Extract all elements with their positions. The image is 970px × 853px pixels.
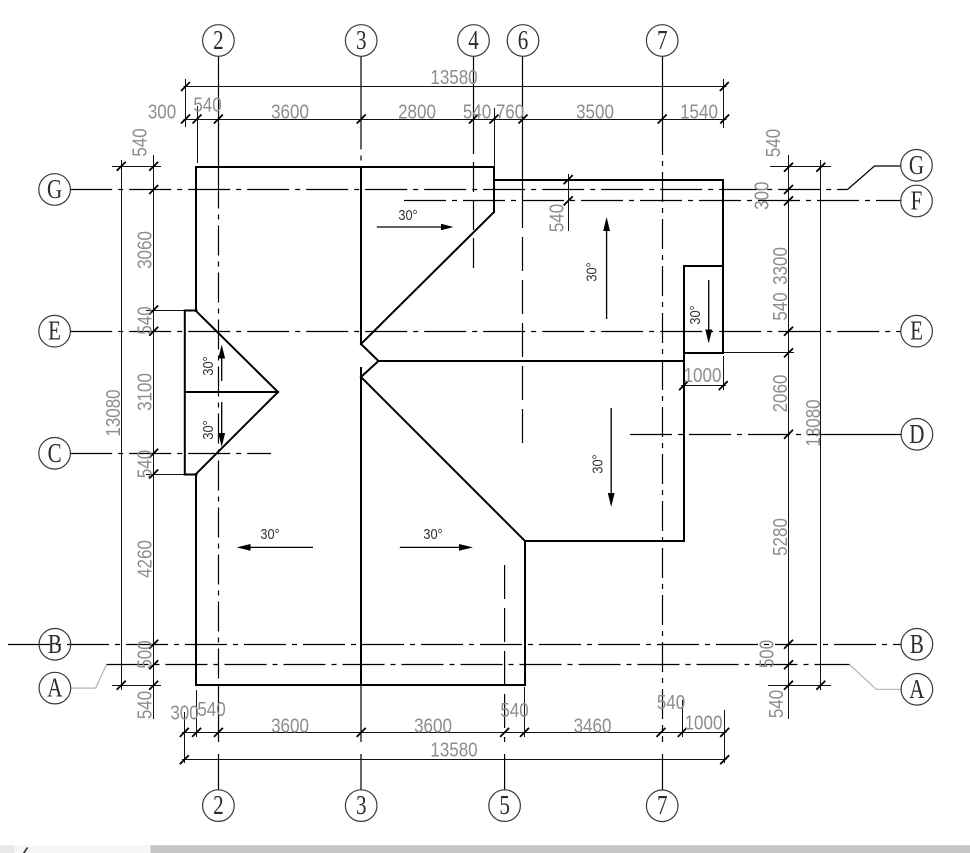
- svg-text:3: 3: [356, 26, 367, 56]
- svg-text:540: 540: [128, 128, 151, 156]
- svg-text:540: 540: [762, 129, 785, 157]
- svg-text:13580: 13580: [430, 738, 477, 761]
- svg-text:7: 7: [657, 26, 668, 56]
- svg-text:500: 500: [755, 640, 778, 668]
- svg-text:30°: 30°: [588, 454, 605, 473]
- svg-text:540: 540: [133, 306, 156, 334]
- svg-text:5280: 5280: [769, 518, 792, 556]
- svg-text:3300: 3300: [769, 247, 792, 285]
- svg-text:3100: 3100: [133, 373, 156, 411]
- svg-text:F: F: [911, 186, 923, 216]
- svg-text:300: 300: [750, 182, 773, 210]
- svg-text:500: 500: [133, 640, 156, 668]
- svg-text:5: 5: [499, 791, 510, 821]
- svg-text:540: 540: [133, 691, 156, 719]
- svg-text:1000: 1000: [684, 364, 722, 387]
- svg-text:A: A: [47, 673, 63, 703]
- svg-text:30°: 30°: [199, 420, 216, 439]
- svg-text:2060: 2060: [769, 375, 792, 413]
- svg-text:G: G: [47, 175, 62, 205]
- svg-text:6: 6: [518, 26, 529, 56]
- svg-text:13080: 13080: [802, 399, 825, 446]
- svg-text:300: 300: [148, 100, 176, 123]
- svg-text:4: 4: [468, 26, 479, 56]
- svg-text:540: 540: [463, 100, 491, 123]
- svg-text:E: E: [48, 316, 61, 346]
- svg-text:G: G: [909, 150, 924, 180]
- svg-text:540: 540: [657, 691, 685, 714]
- svg-text:B: B: [48, 629, 62, 659]
- svg-text:760: 760: [496, 100, 524, 123]
- svg-text:300: 300: [170, 701, 198, 724]
- svg-text:13580: 13580: [430, 66, 477, 89]
- svg-text:3600: 3600: [271, 714, 309, 737]
- svg-text:E: E: [910, 316, 923, 346]
- svg-text:3500: 3500: [576, 100, 614, 123]
- svg-text:4260: 4260: [133, 540, 156, 578]
- svg-text:1000: 1000: [685, 711, 723, 734]
- svg-text:540: 540: [193, 93, 221, 116]
- svg-text:B: B: [910, 629, 924, 659]
- svg-text:3460: 3460: [574, 714, 612, 737]
- svg-text:3600: 3600: [414, 714, 452, 737]
- svg-text:30°: 30°: [686, 305, 703, 324]
- svg-text:3060: 3060: [133, 231, 156, 269]
- svg-text:540: 540: [133, 450, 156, 478]
- svg-text:7: 7: [657, 791, 668, 821]
- svg-text:540: 540: [545, 204, 568, 232]
- svg-text:1540: 1540: [680, 100, 718, 123]
- svg-text:30°: 30°: [398, 206, 417, 223]
- svg-text:C: C: [48, 438, 62, 468]
- svg-text:2: 2: [213, 791, 224, 821]
- svg-text:2800: 2800: [398, 100, 436, 123]
- svg-text:540: 540: [500, 699, 528, 722]
- svg-text:540: 540: [765, 690, 788, 718]
- svg-text:A: A: [909, 674, 925, 704]
- svg-text:540: 540: [769, 292, 792, 320]
- svg-text:2: 2: [213, 26, 224, 56]
- svg-text:30°: 30°: [199, 356, 216, 375]
- svg-text:3600: 3600: [271, 100, 309, 123]
- svg-text:30°: 30°: [582, 262, 599, 281]
- svg-text:D: D: [909, 419, 924, 449]
- svg-text:13080: 13080: [102, 389, 125, 436]
- svg-text:30°: 30°: [423, 525, 442, 542]
- svg-text:3: 3: [356, 791, 367, 821]
- svg-text:30°: 30°: [260, 525, 279, 542]
- svg-text:540: 540: [197, 698, 225, 721]
